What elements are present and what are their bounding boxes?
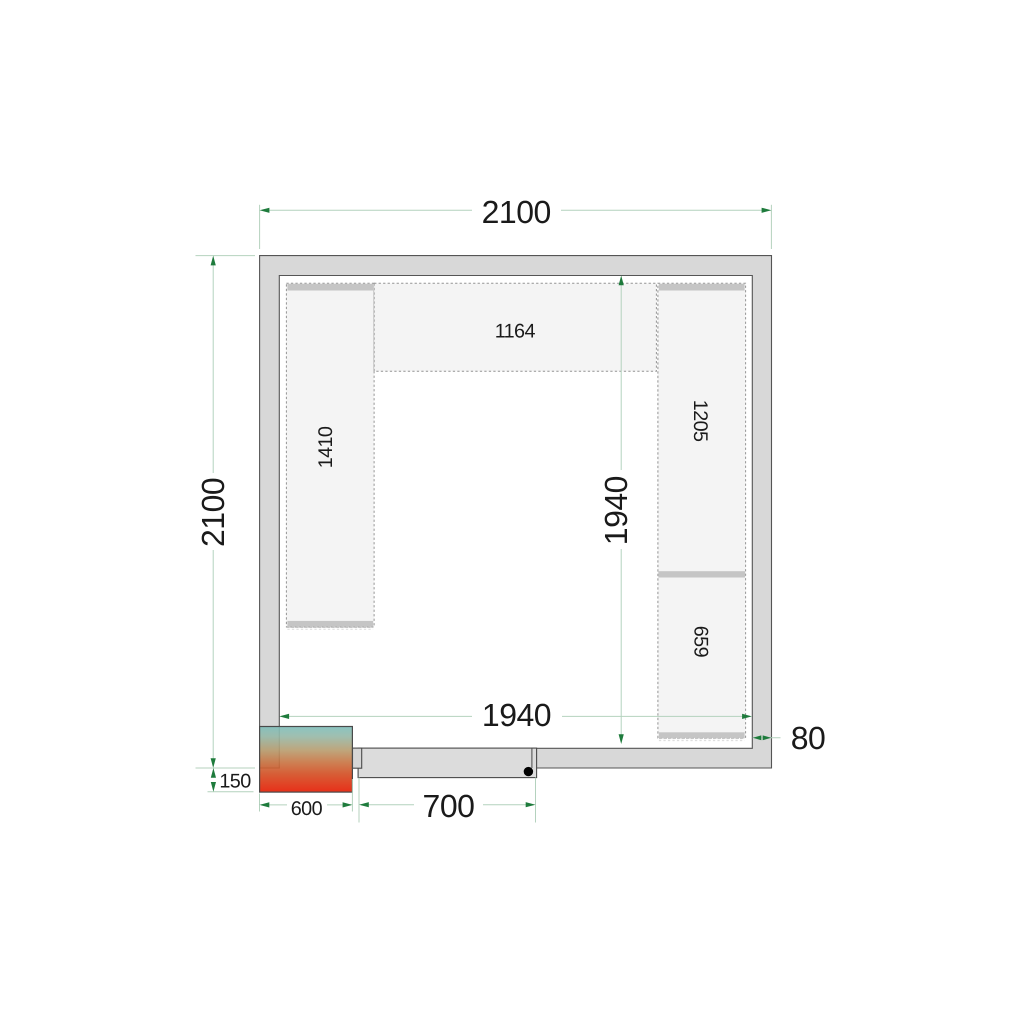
svg-text:600: 600	[291, 798, 323, 820]
svg-text:1205: 1205	[689, 400, 711, 442]
svg-text:80: 80	[791, 720, 826, 756]
svg-text:1410: 1410	[315, 426, 337, 468]
svg-text:2100: 2100	[195, 478, 231, 547]
svg-text:1940: 1940	[598, 476, 634, 545]
svg-text:2100: 2100	[482, 194, 551, 230]
svg-text:1164: 1164	[495, 320, 536, 342]
svg-text:1940: 1940	[482, 697, 551, 733]
svg-text:700: 700	[423, 788, 475, 824]
svg-text:150: 150	[219, 771, 251, 793]
svg-text:659: 659	[690, 626, 712, 658]
